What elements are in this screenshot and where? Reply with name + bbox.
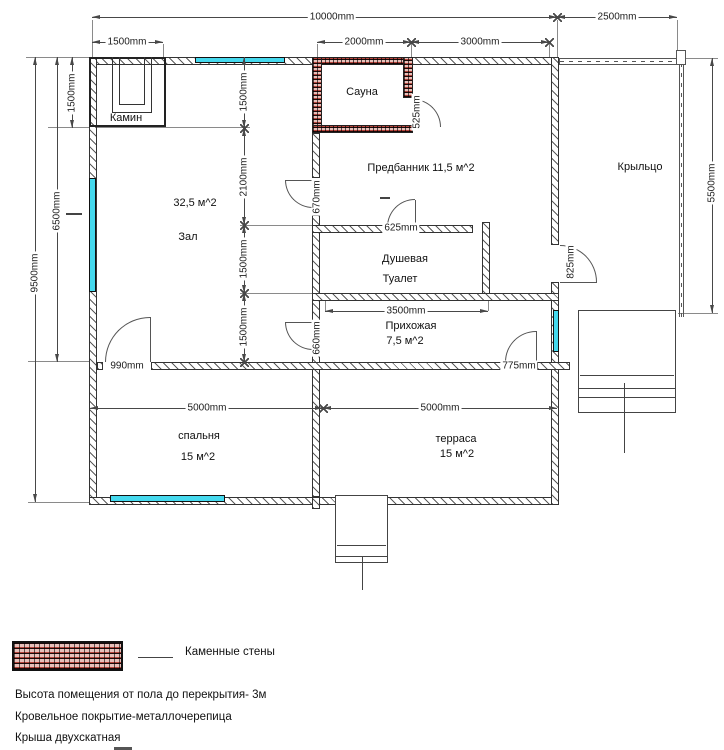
steps-right-tread-1: [580, 375, 674, 376]
door-tick-625: [380, 197, 390, 199]
door-arc-670: [285, 180, 313, 208]
dim-tick: [240, 221, 249, 230]
door-leaf-825: [560, 282, 597, 283]
extension-line: [28, 361, 90, 362]
wall-bedroom-top-b: [151, 362, 503, 370]
note-ceiling-height: Высота помещения от пола до перекрытия- …: [15, 689, 266, 701]
extension-line: [678, 313, 718, 314]
extension-line: [92, 20, 93, 57]
legend-stone-wall-swatch: [12, 641, 123, 671]
sauna-wall-left: [312, 57, 322, 133]
dim-label-chain-1500a: 1500mm: [239, 71, 250, 114]
room-label-terrace: терраса: [435, 433, 476, 445]
extension-line: [557, 20, 558, 57]
steps-right-tread-2: [578, 388, 676, 389]
sauna-wall-bottom: [312, 125, 413, 133]
steps-bottom: [335, 495, 388, 563]
room-label-hallway-area: 7,5 м^2: [386, 335, 423, 347]
door-label-825: 825mm: [566, 243, 577, 280]
door-label-990: 990mm: [108, 361, 145, 372]
legend-label: Каменные стены: [185, 646, 275, 658]
room-label-shower: Душевая: [382, 253, 428, 265]
extension-line: [163, 44, 164, 57]
wall-bedroom-top-c: [537, 362, 570, 370]
wall-middle-stub: [312, 497, 320, 509]
dim-label-chain-2100: 2100mm: [239, 156, 250, 199]
floor-plan-canvas: 10000mm 2500mm 1500mm 2000mm 3000mm 1500…: [0, 0, 724, 750]
room-label-anteroom: Предбанник 11,5 м^2: [367, 162, 474, 174]
room-label-toilet: Туалет: [383, 273, 418, 285]
door-arc-775: [505, 331, 536, 362]
room-label-hall-area: 32,5 м^2: [173, 197, 216, 209]
wall-middle-a: [312, 133, 320, 178]
window-bedroom-bottom: [110, 495, 225, 502]
dim-label-3500: 3500mm: [385, 306, 428, 317]
sauna-wall-top: [312, 57, 413, 65]
dim-tick: [553, 13, 562, 22]
room-label-hall: Зал: [178, 231, 197, 243]
dim-tick: [240, 358, 249, 367]
steps-bottom-axis: [362, 556, 363, 590]
door-label-660: 660mm: [312, 319, 323, 356]
extension-line: [317, 44, 318, 57]
sauna-wall-right: [403, 57, 413, 98]
porch-right-edge: [679, 65, 684, 317]
room-label-bedroom-area: 15 м^2: [181, 451, 215, 463]
dim-label-2500: 2500mm: [596, 12, 639, 23]
door-label-670: 670mm: [312, 178, 323, 215]
extension-line: [28, 502, 89, 503]
room-label-sauna: Сауна: [346, 86, 378, 98]
dim-tick: [545, 38, 554, 47]
dim-label-5000-left: 5000mm: [186, 403, 229, 414]
wall-right-upper: [551, 57, 559, 245]
dim-label-1500-left: 1500mm: [67, 72, 78, 115]
fireplace-inner-2: [119, 57, 145, 105]
door-leaf-775: [536, 331, 537, 362]
note-roof-type: Крыша двухскатная: [15, 732, 121, 744]
dim-label-5500: 5500mm: [707, 162, 718, 205]
room-label-bedroom: спальня: [178, 430, 220, 442]
dim-label-chain-1500c: 1500mm: [239, 306, 250, 349]
note-roofing: Кровельное покрытие-металлочерепица: [15, 711, 232, 723]
dim-label-10000: 10000mm: [308, 12, 356, 23]
dim-label-6500: 6500mm: [52, 190, 63, 233]
dim-label-3000: 3000mm: [459, 37, 502, 48]
window-tick-left: [66, 213, 82, 215]
dim-tick: [319, 404, 328, 413]
dim-tick: [240, 289, 249, 298]
door-arc-660: [285, 322, 313, 350]
extension-line: [240, 293, 312, 294]
dim-label-chain-1500b: 1500mm: [239, 238, 250, 281]
extension-line: [48, 127, 250, 128]
extension-line: [240, 225, 312, 226]
room-label-hallway: Прихожая: [386, 320, 437, 332]
wall-bedroom-top-a: [97, 362, 103, 370]
door-label-525: 525mm: [412, 93, 423, 130]
dim-label-2000: 2000mm: [343, 37, 386, 48]
steps-right-tread-3: [578, 397, 676, 398]
steps-right-axis: [624, 383, 625, 453]
wall-shower-right: [482, 222, 490, 301]
dim-label-1500-top: 1500mm: [106, 37, 149, 48]
door-label-775: 775mm: [500, 361, 537, 372]
room-label-fireplace: Камин: [110, 112, 142, 124]
legend-line: [138, 657, 173, 658]
porch-top-band: [559, 58, 686, 65]
dim-label-5000-right: 5000mm: [419, 403, 462, 414]
dim-tick: [407, 38, 416, 47]
room-label-terrace-area: 15 м^2: [440, 448, 474, 460]
wall-hallway-top: [312, 293, 559, 301]
dim-tick: [240, 124, 249, 133]
extension-line: [488, 301, 489, 311]
door-arc-990: [105, 317, 150, 362]
wall-shower-top-left: [312, 225, 385, 233]
wall-middle-c: [312, 350, 320, 497]
dim-label-9500: 9500mm: [30, 252, 41, 295]
window-top: [195, 57, 285, 63]
porch-post: [676, 50, 686, 65]
window-hallway-right: [553, 310, 559, 352]
room-label-porch: Крыльцо: [618, 161, 663, 173]
door-leaf-990: [150, 317, 151, 362]
wall-shower-top-right: [415, 225, 473, 233]
window-left: [89, 178, 96, 292]
steps-bottom-tread-1: [337, 545, 386, 546]
door-label-625: 625mm: [382, 223, 419, 234]
